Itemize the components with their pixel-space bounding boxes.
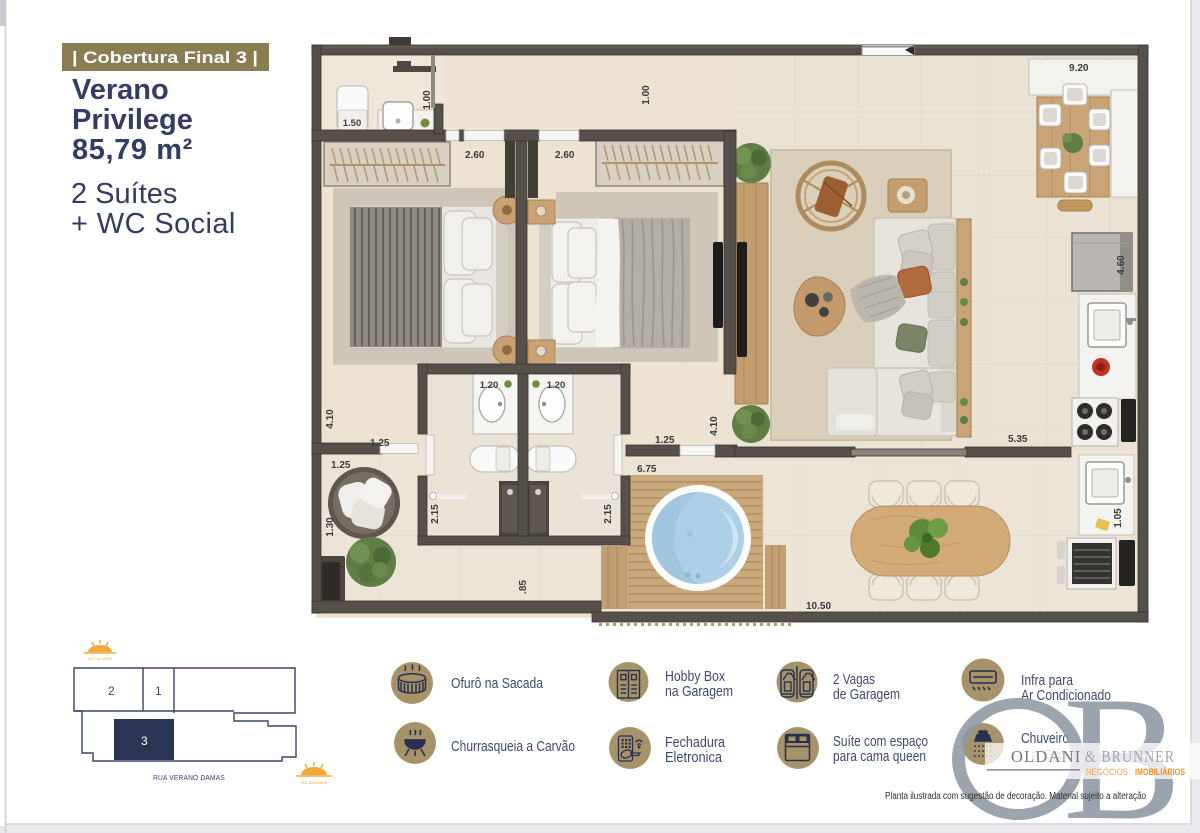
svg-text:2.15: 2.15 xyxy=(603,504,614,524)
svg-text:Churrasqueia a Carvão: Churrasqueia a Carvão xyxy=(451,738,575,755)
svg-text:| Cobertura Final 3 |: | Cobertura Final 3 | xyxy=(72,49,258,67)
svg-text:1.20: 1.20 xyxy=(480,380,499,391)
svg-text:1.30: 1.30 xyxy=(325,517,336,537)
svg-text:1.00: 1.00 xyxy=(422,90,433,110)
svg-text:SOL DA TARDE: SOL DA TARDE xyxy=(87,657,113,661)
svg-text:RUA VERANO DAMAS: RUA VERANO DAMAS xyxy=(153,773,225,782)
svg-text:Privilege: Privilege xyxy=(72,104,193,136)
svg-text:3: 3 xyxy=(141,734,148,748)
svg-text:NEGÓCIOS: NEGÓCIOS xyxy=(1086,767,1128,777)
svg-text:1.25: 1.25 xyxy=(655,435,675,446)
svg-text:IMOBILIÁRIOS: IMOBILIÁRIOS xyxy=(1135,767,1185,777)
svg-text:6.75: 6.75 xyxy=(637,464,657,475)
svg-text:SOL DA MANHÃ: SOL DA MANHÃ xyxy=(301,780,328,785)
svg-text:de Garagem: de Garagem xyxy=(833,686,900,703)
svg-text:para cama queen: para cama queen xyxy=(833,748,926,765)
svg-text:Verano: Verano xyxy=(72,74,169,106)
svg-text:.85: .85 xyxy=(518,580,529,594)
svg-text:2: 2 xyxy=(108,684,115,698)
svg-text:1.25: 1.25 xyxy=(370,438,390,449)
svg-text:2.60: 2.60 xyxy=(465,150,485,161)
svg-text:na Garagem: na Garagem xyxy=(665,683,733,700)
svg-text:& BRUNNER: & BRUNNER xyxy=(1085,747,1175,766)
svg-text:1.25: 1.25 xyxy=(331,460,351,471)
svg-text:4.60: 4.60 xyxy=(1116,255,1127,275)
svg-text:2 Suítes: 2 Suítes xyxy=(71,178,177,210)
svg-text:1.05: 1.05 xyxy=(1113,508,1124,528)
svg-text:85,79 m²: 85,79 m² xyxy=(72,134,193,166)
svg-text:1.20: 1.20 xyxy=(547,380,566,391)
svg-text:5.35: 5.35 xyxy=(1008,434,1028,445)
svg-text:Ofurô na Sacada: Ofurô na Sacada xyxy=(451,675,544,692)
svg-text:2.60: 2.60 xyxy=(555,150,575,161)
svg-text:1.00: 1.00 xyxy=(641,85,652,105)
svg-text:9.20: 9.20 xyxy=(1069,63,1089,74)
svg-text:Planta ilustrada com sugestão: Planta ilustrada com sugestão de decoraç… xyxy=(885,791,1146,802)
svg-text:1.50: 1.50 xyxy=(343,118,362,129)
svg-text:2.15: 2.15 xyxy=(430,504,441,524)
svg-text:Eletronica: Eletronica xyxy=(665,749,723,766)
svg-text:10.50: 10.50 xyxy=(806,601,831,612)
svg-text:OLDANI: OLDANI xyxy=(1011,747,1081,766)
svg-text:4.10: 4.10 xyxy=(709,416,720,436)
svg-text:4.10: 4.10 xyxy=(325,409,336,429)
svg-text:+ WC Social: + WC Social xyxy=(71,208,236,240)
svg-text:1: 1 xyxy=(155,684,162,698)
